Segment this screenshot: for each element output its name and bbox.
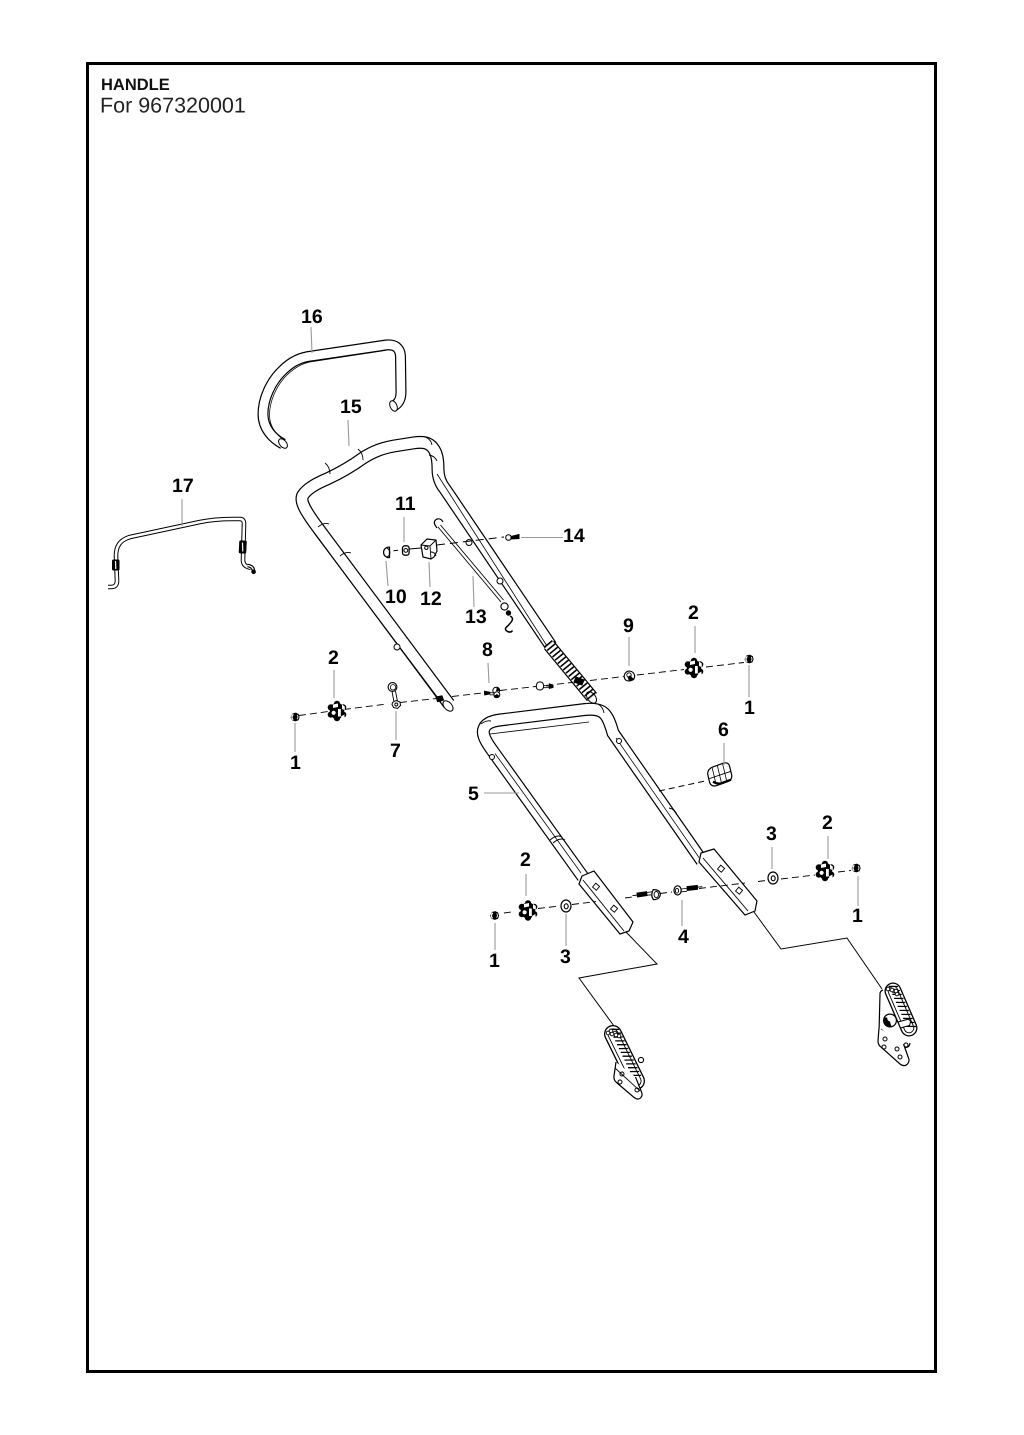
svg-text:8: 8	[482, 639, 493, 661]
svg-text:1: 1	[489, 950, 500, 972]
svg-text:HANDLE: HANDLE	[101, 76, 170, 94]
svg-text:16: 16	[301, 306, 323, 328]
svg-text:7: 7	[390, 740, 401, 762]
svg-text:1: 1	[290, 752, 301, 774]
svg-text:9: 9	[623, 615, 634, 637]
svg-text:10: 10	[385, 586, 407, 608]
svg-text:1: 1	[744, 697, 755, 719]
svg-text:13: 13	[465, 606, 487, 628]
svg-text:4: 4	[678, 926, 689, 948]
svg-text:6: 6	[718, 719, 729, 741]
svg-text:3: 3	[560, 946, 571, 968]
svg-text:2: 2	[520, 849, 531, 871]
svg-text:15: 15	[340, 396, 362, 418]
svg-text:11: 11	[395, 493, 416, 515]
svg-text:14: 14	[563, 525, 585, 547]
svg-text:For 967320001: For 967320001	[100, 94, 246, 118]
svg-text:2: 2	[688, 602, 699, 624]
svg-text:12: 12	[420, 588, 442, 610]
svg-text:17: 17	[172, 475, 194, 497]
svg-text:5: 5	[468, 783, 479, 805]
svg-text:2: 2	[328, 647, 339, 669]
svg-text:1: 1	[852, 905, 863, 927]
svg-text:3: 3	[766, 823, 777, 845]
svg-text:2: 2	[822, 812, 833, 834]
